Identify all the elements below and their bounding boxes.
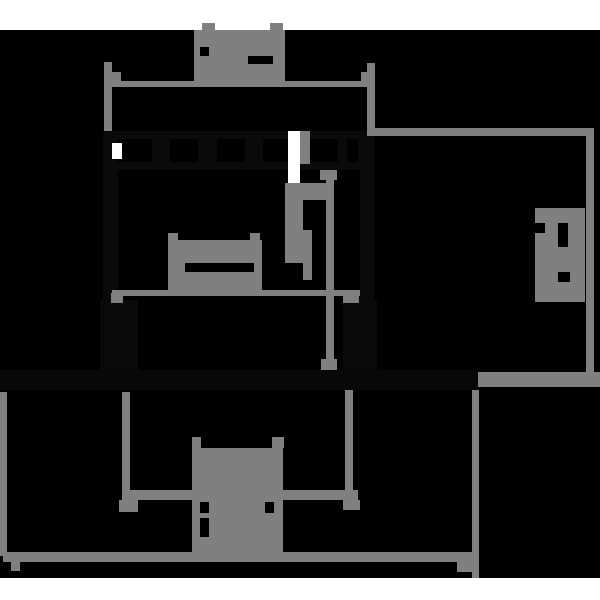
part-castellation-wall-4 [338,139,347,170]
right-dimension-vertical-line [586,128,594,377]
dimension-drawing [0,0,600,600]
part-castellation-bottom-edge [103,162,374,170]
top-dimension-label-tab-left [202,23,215,31]
page-band-bottom [0,578,600,600]
mid-dimension-tick-left [111,293,123,303]
right-dimension-label-mark-3 [558,272,570,282]
right-dimension-label-mark-2 [558,223,568,247]
bottom-dimension-label-tab-right [272,437,284,448]
din-rail-band [0,370,478,390]
terminal-slot-gray-right [300,131,310,164]
top-dimension-tick-left [112,72,121,81]
rail-dimension-line [3,552,478,562]
bottom-dimension-label-mark-3 [265,502,274,513]
vertical-dimension-label-blob-b [285,200,303,230]
top-dimension-label-mark-1 [200,47,209,56]
right-dimension-top-line [368,128,594,136]
bottom-dimension-label-tab-left [192,437,201,448]
part-castellation-wall-1 [152,139,170,170]
bottom-dimension-extension-left [122,392,130,500]
rail-dimension-extension-left [0,392,7,556]
part-castellation-wall-2 [198,139,217,170]
rail-dimension-tick-left [11,562,20,571]
vertical-dimension-label-blob-d [303,263,312,280]
vertical-dimension-label-blob-c [285,230,312,263]
terminal-slot-white-right [288,131,300,187]
vertical-dimension-tick-bottom [321,359,337,370]
top-dimension-label-mark-2 [248,56,273,64]
part-top-edge [103,131,374,139]
bottom-dimension-label-mark-1 [200,502,209,513]
page-band-top [0,0,600,30]
right-dimension-rail-reference [478,372,600,387]
top-dimension-tick-right [361,72,370,82]
terminal-slot-white-left [112,143,122,159]
part-left-foot [100,300,138,372]
part-right-foot [343,300,377,372]
vertical-dimension-line [326,173,334,370]
part-castellation-wall-3 [245,139,263,170]
top-dimension-extension-left [104,62,112,131]
bottom-dimension-extension-right [345,390,353,500]
bottom-dimension-label-mark-2 [200,518,209,537]
mid-dimension-tick-right [343,294,359,303]
rail-dimension-extension-right [472,390,479,578]
right-dimension-label-mark-1 [535,223,545,233]
mid-dimension-label-mark [185,263,254,272]
mid-dimension-label-tab-right [250,233,260,240]
rail-dimension-tick-right [457,562,478,572]
mid-dimension-label-tab-left [168,233,178,240]
bottom-dimension-extension-right-tick [343,500,360,510]
bottom-dimension-extension-left-tick [119,500,138,512]
top-dimension-label-tab-right [270,23,283,31]
vertical-dimension-label-blob-a [285,183,326,200]
vertical-dimension-tick-top [320,170,337,180]
